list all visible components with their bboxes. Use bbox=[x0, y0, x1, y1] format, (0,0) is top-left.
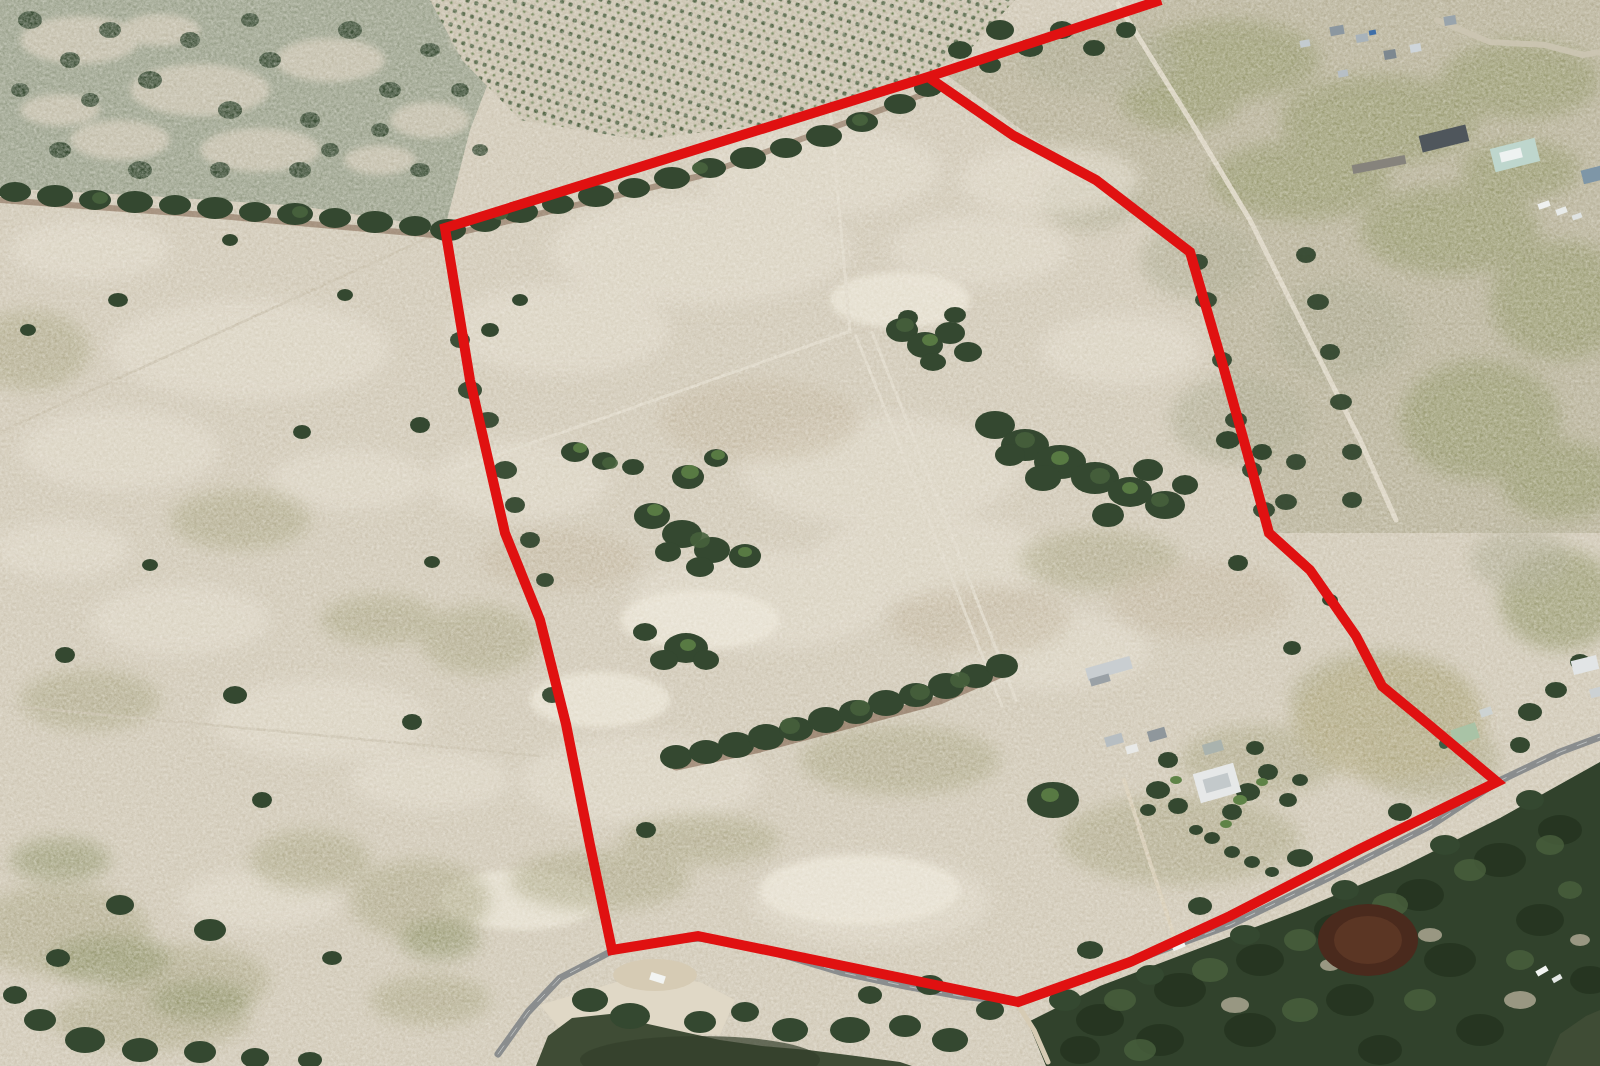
farm-dam-inner bbox=[1334, 916, 1402, 964]
aerial-photo-canvas bbox=[0, 0, 1600, 1066]
aerial-photo bbox=[0, 0, 1600, 1066]
